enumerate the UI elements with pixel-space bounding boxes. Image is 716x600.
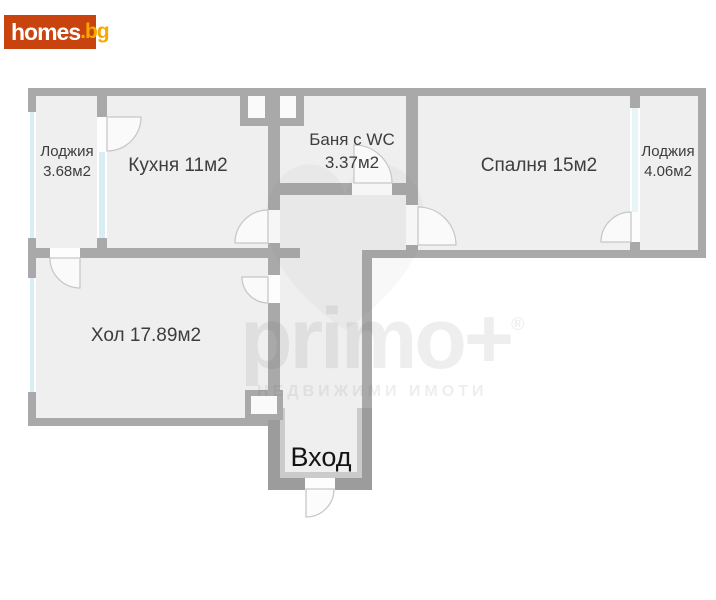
label-living-room: Хол 17.89м2	[91, 323, 201, 349]
floor-plan: primo+® НЕДВИЖИМИ ИМОТИ Лоджия 3.68м2 Ку…	[0, 0, 716, 600]
shaft-box-2-inner	[280, 96, 296, 118]
loggia-left-area: 3.68м2	[40, 162, 93, 182]
floor-plan-screenshot: homes.bg	[0, 0, 716, 600]
wall-living-bottom	[28, 418, 280, 426]
primo-watermark: primo+®	[240, 296, 524, 382]
door-opening-loggia-kitchen	[97, 117, 107, 152]
door-arc-entrance	[306, 489, 334, 517]
registered-mark: ®	[511, 314, 524, 334]
bathroom-name: Баня с WC	[309, 129, 394, 152]
primo-watermark-slogan: НЕДВИЖИМИ ИМОТИ	[257, 383, 487, 401]
label-loggia-left: Лоджия 3.68м2	[40, 142, 93, 183]
loggia-right-name: Лоджия	[641, 142, 694, 162]
window-living-outer	[28, 278, 36, 392]
label-loggia-right: Лоджия 4.06м2	[641, 142, 694, 183]
wall-right-outer	[698, 88, 706, 258]
door-opening-bathroom	[352, 183, 392, 195]
door-opening-corridor-bedroom	[406, 205, 418, 245]
label-entrance: Вход	[290, 442, 351, 473]
bathroom-area: 3.37м2	[309, 152, 394, 175]
label-bedroom: Спалня 15м2	[481, 153, 598, 179]
window-loggia-left-outer	[28, 112, 36, 238]
shaft-box-1-inner	[248, 96, 265, 118]
window-loggia-kitchen	[97, 152, 107, 238]
loggia-left-name: Лоджия	[40, 142, 93, 162]
label-kitchen: Кухня 11м2	[128, 153, 227, 179]
wall-top-outer	[28, 88, 706, 96]
entrance-lining-right	[357, 408, 362, 478]
door-opening-loggia-living	[50, 248, 80, 258]
window-bedroom-loggia	[630, 108, 640, 212]
door-opening-bedroom-loggia	[630, 212, 640, 242]
door-opening-entrance	[305, 478, 335, 490]
label-bathroom: Баня с WC 3.37м2	[309, 129, 394, 175]
loggia-right-area: 4.06м2	[641, 162, 694, 182]
door-opening-kitchen-corridor	[268, 210, 280, 243]
primo-watermark-text: primo+	[240, 291, 511, 387]
